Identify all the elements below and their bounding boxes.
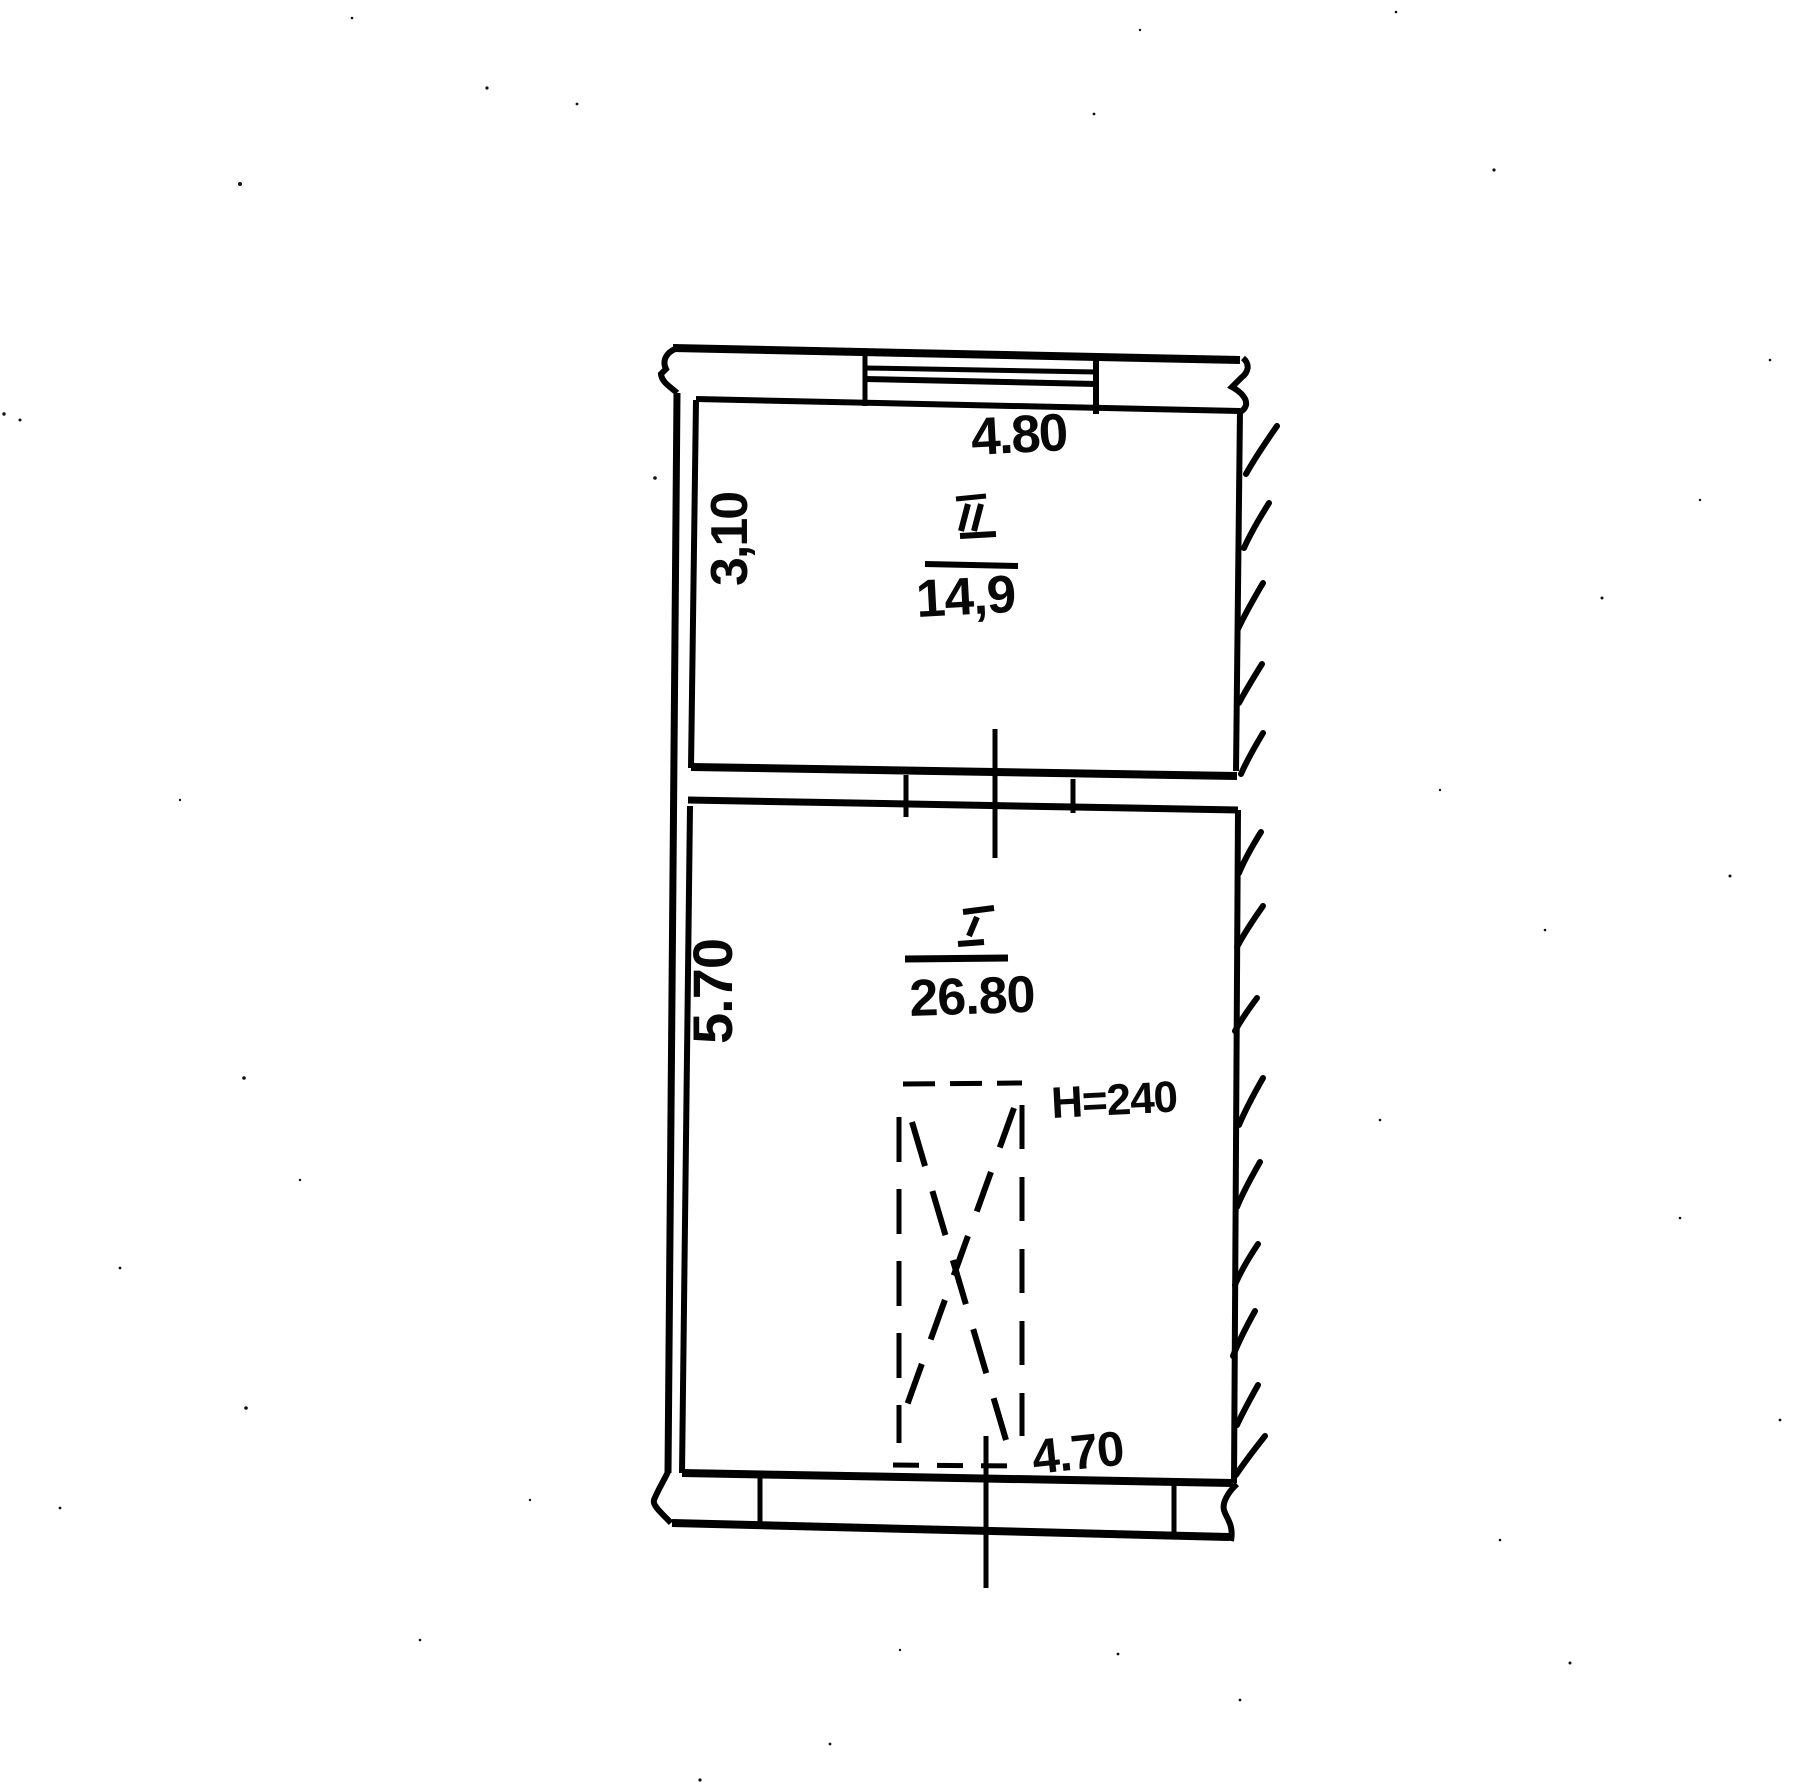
svg-text:4.70: 4.70 [1030, 1422, 1127, 1485]
svg-text:26.80: 26.80 [908, 966, 1035, 1028]
svg-text:14,9: 14,9 [915, 565, 1017, 629]
svg-text:3,10: 3,10 [701, 493, 759, 586]
svg-text:H=240: H=240 [1050, 1072, 1178, 1128]
svg-text:4.80: 4.80 [970, 403, 1069, 467]
svg-text:5.70: 5.70 [681, 939, 744, 1044]
